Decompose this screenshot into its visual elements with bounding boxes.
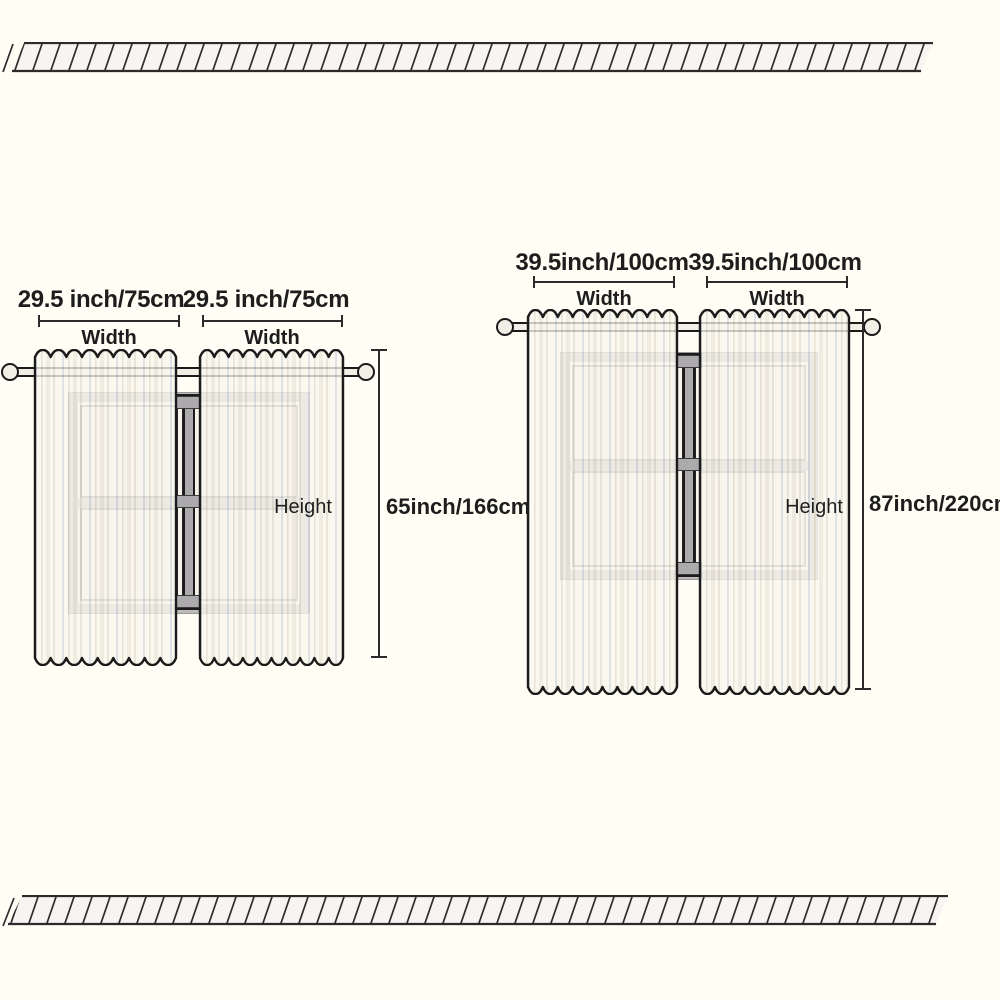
small-rod-finial-left (1, 363, 19, 381)
curtain-panel (32, 349, 179, 666)
large-height-size-label: 87inch/220cm (869, 491, 1000, 517)
large-panel1-width-label: Width (554, 288, 654, 311)
small-height-label: Height (253, 496, 353, 519)
curtain-panel (525, 309, 680, 695)
small-panel1-width-dimension-line (38, 315, 180, 327)
large-panel2-width-dimension-line (706, 276, 848, 288)
hatched-border-bottom (0, 895, 1000, 927)
small-panel2-size-label: 29.5 inch/75cm (176, 286, 356, 314)
large-panel2-width-label: Width (727, 288, 827, 311)
curtain-dimension-diagram: 29.5 inch/75cm 29.5 inch/75cm Width Widt… (0, 0, 1000, 1000)
small-panel1-size-label: 29.5 inch/75cm (11, 286, 191, 314)
small-height-dimension-line (371, 349, 387, 658)
large-panel1-size-label: 39.5inch/100cm (512, 249, 692, 277)
small-panel2-width-dimension-line (202, 315, 343, 327)
hatched-border-top (0, 42, 1000, 74)
small-height-size-label: 65inch/166cm (386, 494, 546, 520)
small-panel2-width-label: Width (222, 327, 322, 350)
small-panel1-width-label: Width (59, 327, 159, 350)
large-panel2-size-label: 39.5inch/100cm (685, 249, 865, 277)
large-rod-finial-left (496, 318, 514, 336)
large-panel1-width-dimension-line (533, 276, 675, 288)
large-height-label: Height (764, 496, 864, 519)
